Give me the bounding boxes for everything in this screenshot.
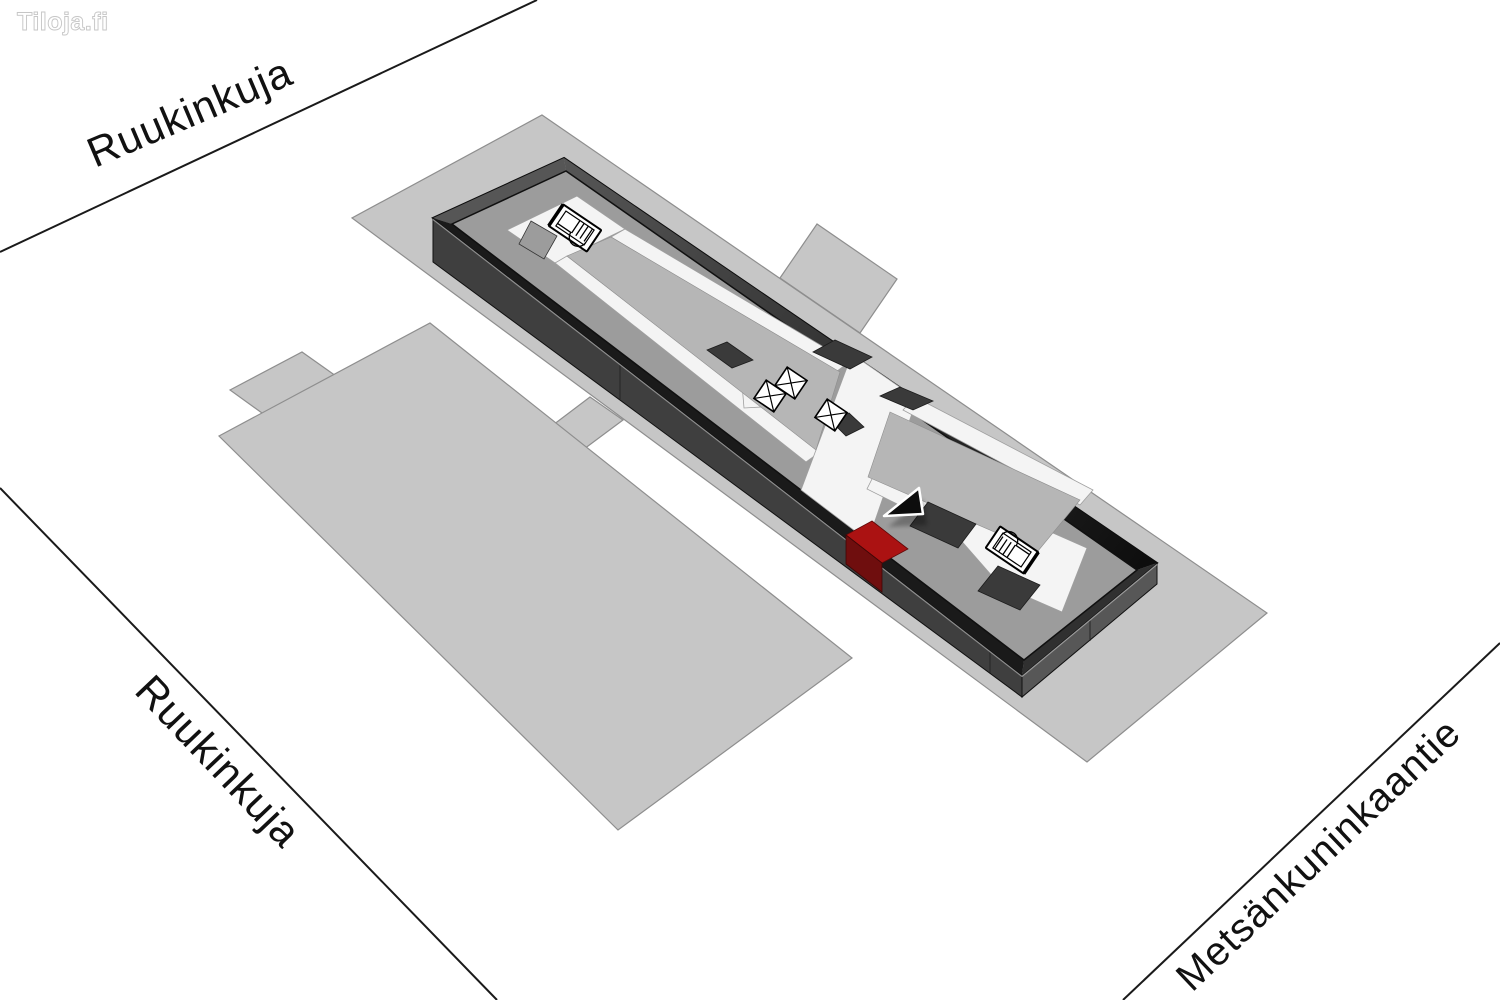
logo: Tiloja.fi <box>17 8 109 37</box>
street-label-metsankuninkaantie: Metsänkuninkaantie <box>1168 710 1469 999</box>
street-label-ruukinkuja-top: Ruukinkuja <box>80 48 299 176</box>
site-map[interactable]: Ruukinkuja Ruukinkuja Metsänkuninkaantie <box>0 0 1500 1000</box>
map-page: Ruukinkuja Ruukinkuja Metsänkuninkaantie <box>0 0 1500 1000</box>
street-label-ruukinkuja-bottom: Ruukinkuja <box>126 666 310 856</box>
street-line-bottom-right <box>1123 643 1500 1000</box>
